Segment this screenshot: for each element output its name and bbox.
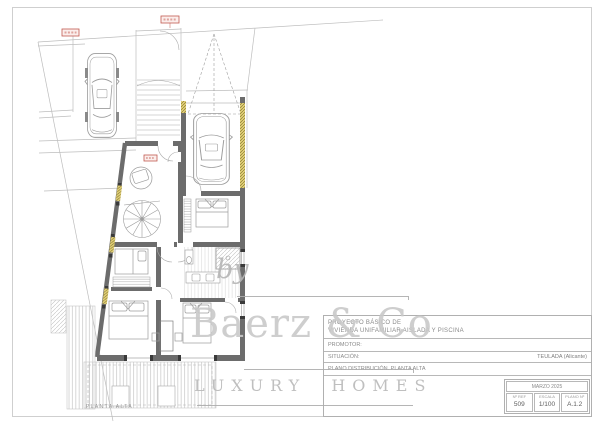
project-label: PROYECTO BÁSICO DE [328, 319, 587, 327]
level-marker-icon [62, 29, 79, 36]
living-furniture [130, 167, 152, 189]
location-label: SITUACIÓN: [328, 354, 359, 360]
level-markers [62, 16, 179, 161]
sheet-title: PLANO DISTRIBUCIÓN. PLANTA ALTA [328, 366, 426, 372]
plan-number-value: A.1.2 [562, 400, 587, 410]
sheet-date: MARZO 2025 [506, 381, 588, 392]
roof-dashed-lines [188, 34, 241, 114]
location-value: TEULADA (Alicante) [537, 353, 587, 362]
sheet-title-row: PLANO DISTRIBUCIÓN. PLANTA ALTA [324, 363, 591, 376]
project-name: VIVIENDA UNIFAMILIAR AISLADA Y PISCINA [328, 327, 587, 335]
plan-number-cell: PLANO Nº A.1.2 [561, 393, 588, 412]
level-marker-icon [161, 16, 179, 28]
ref-cell: Nº REF 509 [506, 393, 533, 412]
exterior-stairs [137, 31, 180, 135]
ref-value: 509 [507, 400, 532, 410]
project-description: PROYECTO BÁSICO DE VIVIENDA UNIFAMILIAR … [324, 316, 591, 339]
scale-cell: ESCALA 1/100 [534, 393, 561, 412]
sheet-info-table: MARZO 2025 Nº REF 509 ESCALA 1/100 PLANO… [504, 379, 590, 414]
title-block: PROYECTO BÁSICO DE VIVIENDA UNIFAMILIAR … [323, 315, 592, 417]
plan-caption: PLANTA ALTA [86, 404, 133, 410]
level-marker-icon [144, 155, 157, 161]
garage-car [191, 114, 233, 185]
drawing-sheet: PLANTA ALTA PROYECTO BÁSICO DE VIVIENDA … [0, 0, 600, 424]
promoter-label: PROMOTOR: [328, 342, 362, 348]
spiral-staircase [124, 201, 161, 238]
promoter-row: PROMOTOR: [324, 339, 591, 352]
parking-car [85, 54, 119, 138]
bathroom-fixtures [184, 247, 240, 298]
title-block-bottom: MARZO 2025 Nº REF 509 ESCALA 1/100 PLANO… [324, 376, 591, 416]
location-row: SITUACIÓN: TEULADA (Alicante) [324, 352, 591, 363]
scale-value: 1/100 [535, 400, 560, 410]
